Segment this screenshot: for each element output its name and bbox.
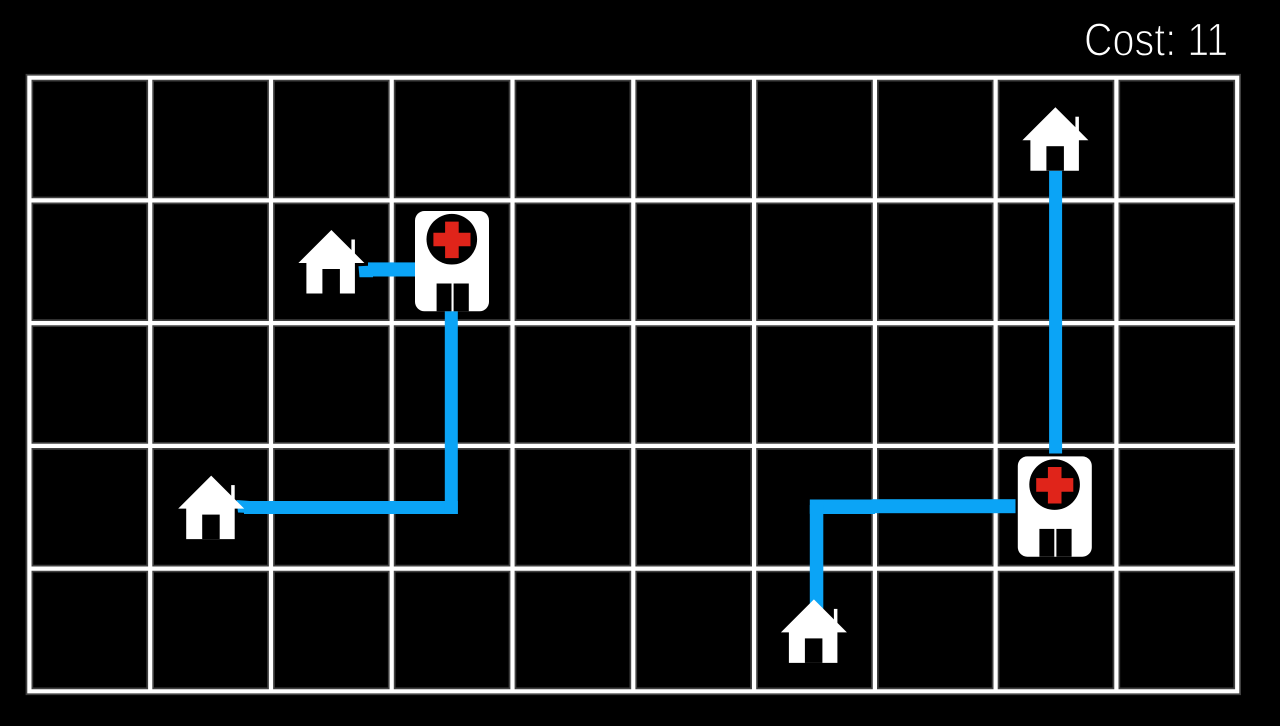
svg-text:Cost: 11: Cost: 11 [1084, 13, 1228, 65]
